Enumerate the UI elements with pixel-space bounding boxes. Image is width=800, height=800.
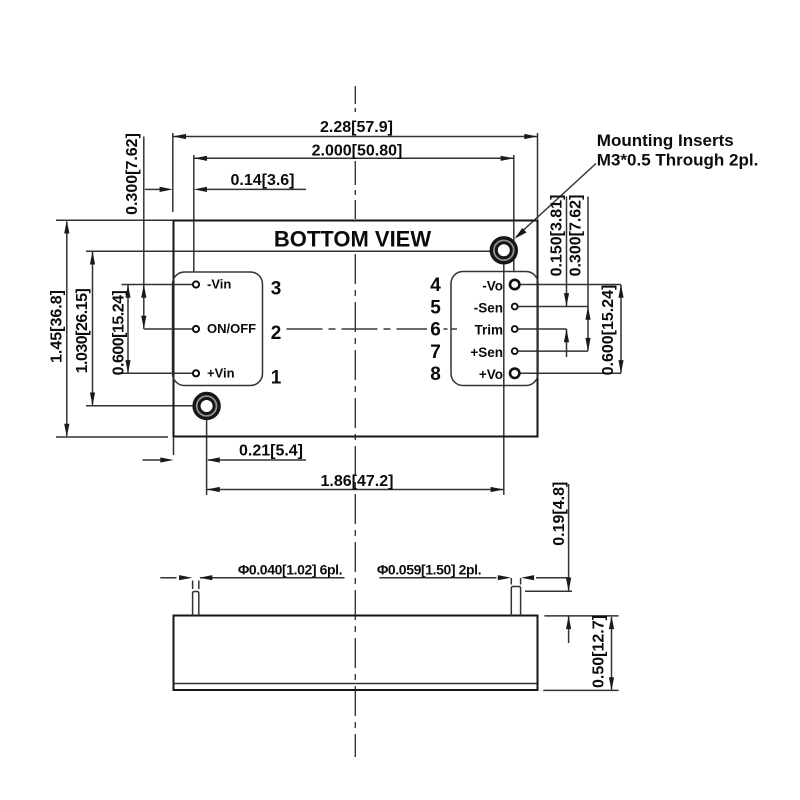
svg-text:1.45[36.8]: 1.45[36.8] [49,290,66,363]
svg-text:2: 2 [271,323,282,344]
svg-text:2.28[57.9]: 2.28[57.9] [320,119,393,136]
svg-text:Φ0.040[1.02] 6pl.: Φ0.040[1.02] 6pl. [238,562,342,578]
svg-text:0.14[3.6]: 0.14[3.6] [230,172,294,189]
svg-text:2.000[50.80]: 2.000[50.80] [312,143,403,160]
svg-text:Trim: Trim [474,323,503,338]
svg-text:4: 4 [430,275,441,296]
svg-text:0.19[4.8]: 0.19[4.8] [551,482,568,546]
svg-text:-Sen: -Sen [474,301,503,316]
svg-text:0.50[12.7]: 0.50[12.7] [590,615,607,688]
svg-text:8: 8 [430,364,441,385]
svg-text:5: 5 [430,297,441,318]
svg-text:Mounting Inserts: Mounting Inserts [597,131,734,150]
svg-text:0.300[7.62]: 0.300[7.62] [568,195,585,277]
svg-text:Φ0.059[1.50] 2pl.: Φ0.059[1.50] 2pl. [377,562,481,578]
svg-text:-Vin: -Vin [207,277,231,292]
svg-text:0.300[7.62]: 0.300[7.62] [124,133,141,215]
svg-text:0.150[3.81]: 0.150[3.81] [549,195,566,277]
svg-text:+Vo: +Vo [479,367,503,382]
svg-text:6: 6 [430,320,441,341]
svg-text:7: 7 [430,342,441,363]
svg-text:+Sen: +Sen [470,345,503,360]
svg-text:+Vin: +Vin [207,365,235,380]
svg-text:-Vo: -Vo [482,278,503,293]
svg-text:1: 1 [271,367,282,388]
svg-text:BOTTOM VIEW: BOTTOM VIEW [274,227,431,252]
svg-text:0.600[15.24]: 0.600[15.24] [111,290,128,375]
svg-text:1.86[47.2]: 1.86[47.2] [321,473,394,490]
svg-text:0.600[15.24]: 0.600[15.24] [600,285,617,376]
svg-text:1.030[26.15]: 1.030[26.15] [74,288,91,373]
svg-text:M3*0.5 Through 2pl.: M3*0.5 Through 2pl. [597,151,759,170]
svg-text:0.21[5.4]: 0.21[5.4] [239,443,303,460]
svg-text:3: 3 [271,279,282,300]
svg-text:ON/OFF: ON/OFF [207,321,256,336]
